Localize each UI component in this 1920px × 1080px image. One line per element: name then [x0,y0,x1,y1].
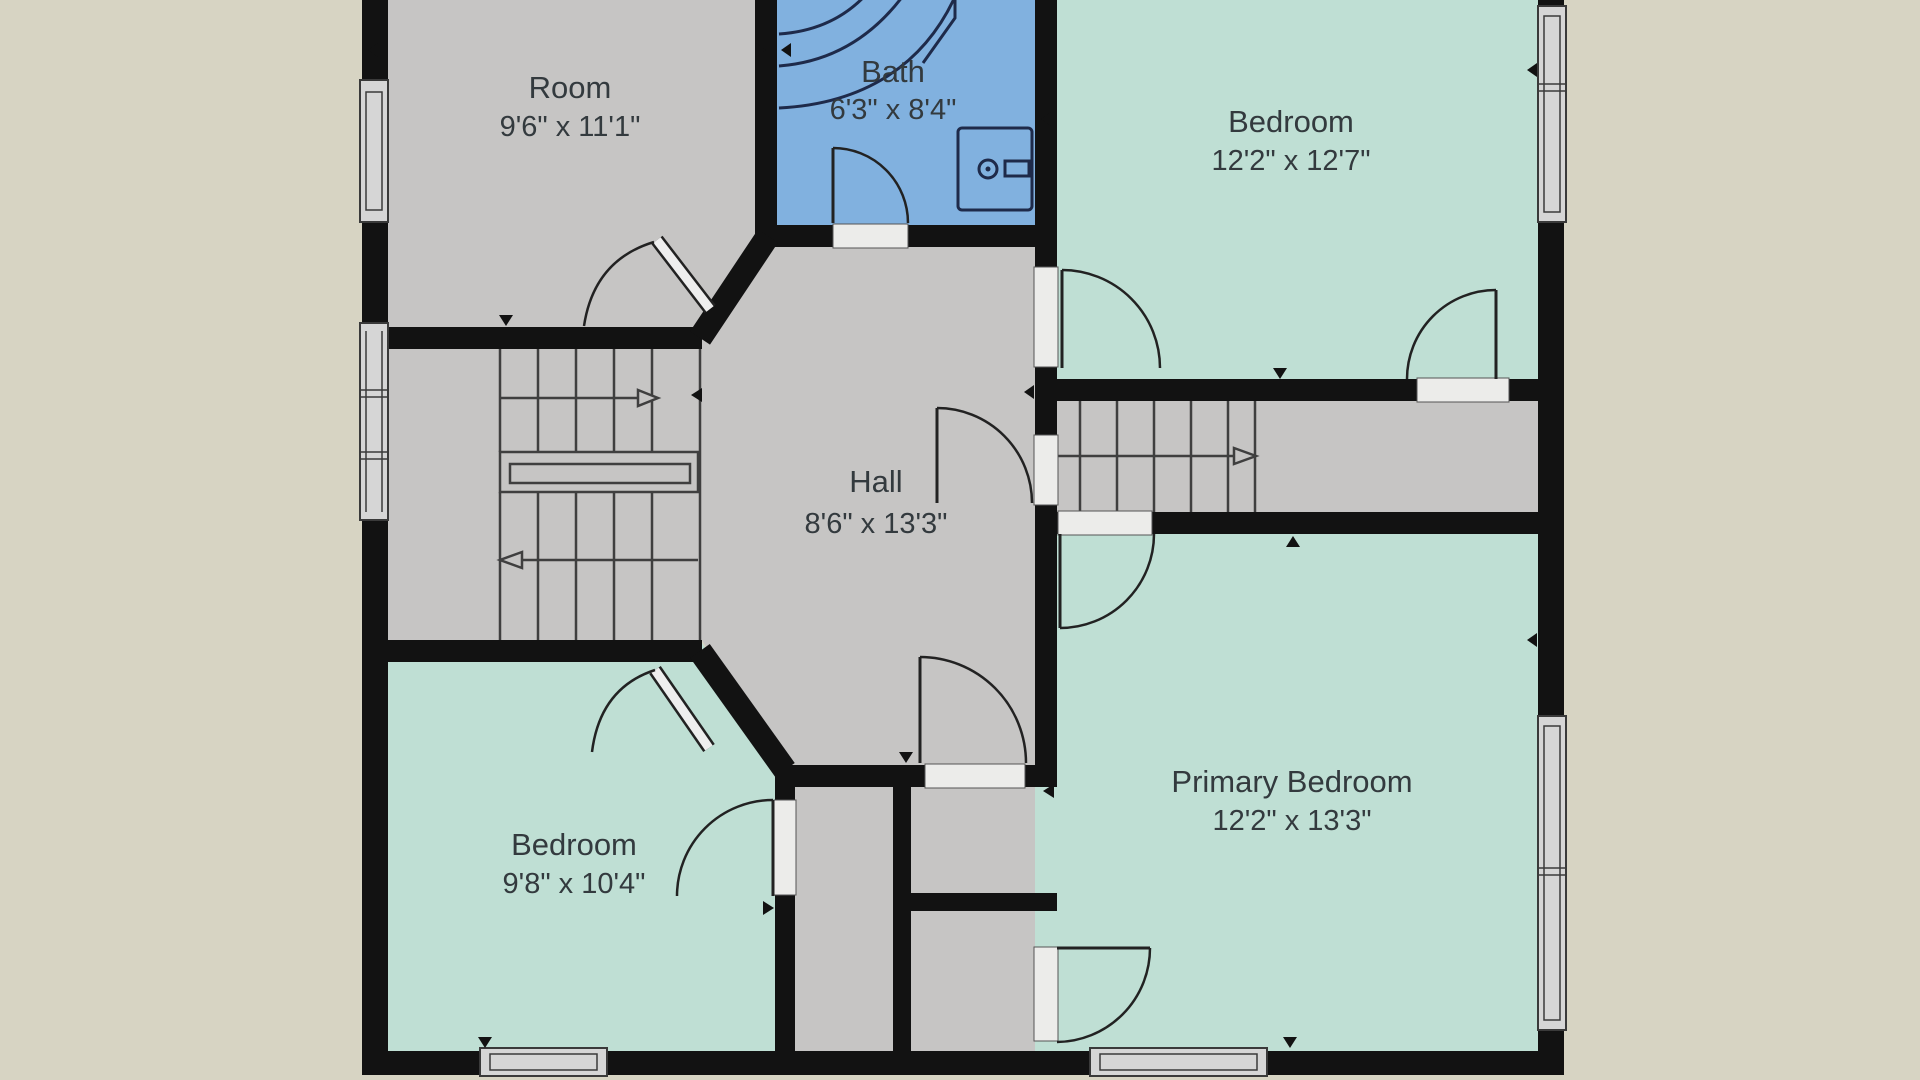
room-dims: 9'6" x 11'1" [500,111,641,143]
bath-dims: 6'3" x 8'4" [830,94,957,126]
window-bedroom-bottom-left [480,1048,607,1076]
floor-plan: Room 9'6" x 11'1" Bath 6'3" x 8'4" Bedro… [0,0,1920,1080]
primary-bedroom-dims: 12'2" x 13'3" [1212,805,1371,837]
bedroom-bottom-left-dims: 9'8" x 10'4" [503,868,646,900]
window-primary-bottom [1090,1048,1267,1076]
window-stairs-left [360,323,388,520]
room-label: Room [529,70,612,105]
closet-left-floor [795,765,893,1051]
window-primary-right [1538,716,1566,1030]
closet-bottom-floor [911,911,1035,1051]
bedroom-top-right-dims: 12'2" x 12'7" [1211,145,1370,177]
window-bedroom-top-right [1538,6,1566,222]
primary-bedroom-label: Primary Bedroom [1171,764,1412,799]
bedroom-bottom-left-label: Bedroom [511,827,637,862]
bedroom-top-right-floor [1035,0,1541,379]
bath-label: Bath [861,54,925,89]
hall-dims: 8'6" x 13'3" [805,508,948,540]
bedroom-top-right-label: Bedroom [1228,104,1354,139]
window-room-left [360,80,388,222]
hall-label: Hall [849,464,902,499]
